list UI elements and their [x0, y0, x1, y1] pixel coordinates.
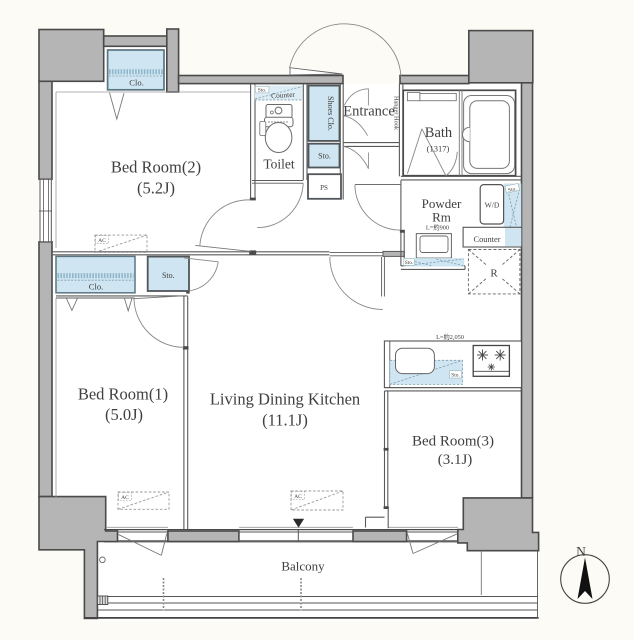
svg-text:Bed Room(1): Bed Room(1)	[78, 385, 168, 404]
svg-text:AC: AC	[294, 494, 302, 500]
svg-text:Shoes Clo.: Shoes Clo.	[326, 96, 335, 131]
svg-text:Sto.: Sto.	[162, 271, 175, 280]
svg-text:Bath: Bath	[425, 125, 453, 141]
svg-text:N: N	[576, 544, 586, 559]
svg-text:L=約2,050: L=約2,050	[436, 332, 464, 341]
svg-text:AC: AC	[98, 238, 106, 244]
svg-text:Toilet: Toilet	[263, 157, 295, 172]
svg-text:(11.1J): (11.1J)	[262, 411, 308, 430]
svg-text:Sto.: Sto.	[451, 373, 460, 379]
svg-text:Balcony: Balcony	[281, 559, 325, 574]
svg-text:PS: PS	[320, 184, 328, 192]
svg-text:Clo.: Clo.	[89, 282, 103, 292]
svg-text:AC: AC	[121, 495, 129, 501]
svg-text:Sto.: Sto.	[258, 88, 267, 94]
svg-text:Living Dining Kitchen: Living Dining Kitchen	[210, 390, 360, 409]
svg-text:Bed Room(3): Bed Room(3)	[412, 434, 494, 450]
svg-text:Bed Room(2): Bed Room(2)	[111, 158, 201, 177]
svg-text:(5.2J): (5.2J)	[137, 179, 175, 198]
svg-text:(5.0J): (5.0J)	[105, 405, 143, 424]
svg-text:R: R	[490, 268, 498, 280]
svg-text:Counter: Counter	[474, 235, 501, 244]
svg-text:L=約900: L=約900	[426, 223, 449, 232]
svg-text:Rm: Rm	[432, 210, 451, 225]
svg-text:(3.1J): (3.1J)	[438, 452, 473, 468]
svg-text:Clo.: Clo.	[129, 78, 143, 88]
svg-text:Sto.: Sto.	[318, 152, 331, 161]
svg-text:Entrance: Entrance	[343, 104, 395, 120]
svg-text:W/D: W/D	[485, 201, 500, 210]
svg-text:Counter: Counter	[271, 90, 296, 101]
svg-text:Sto.: Sto.	[405, 260, 414, 266]
svg-text:(1317): (1317)	[427, 144, 450, 154]
